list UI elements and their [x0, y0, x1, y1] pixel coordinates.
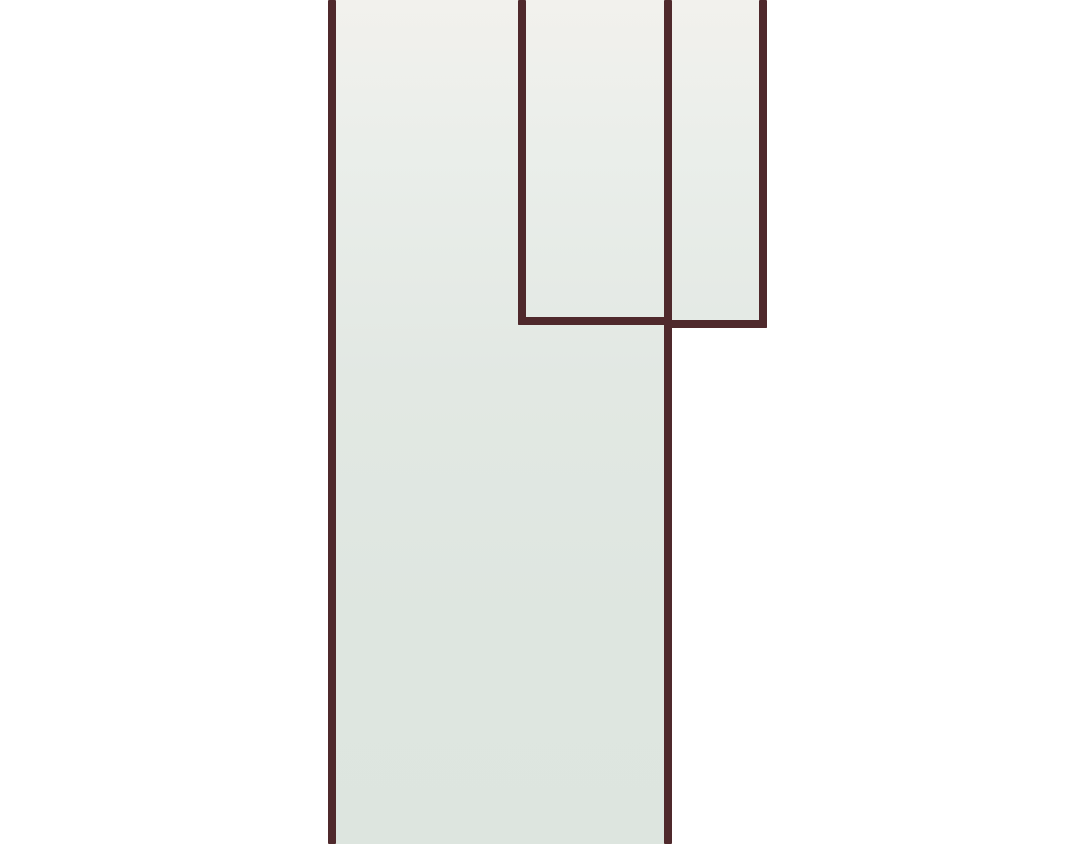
top-right-panel-fill: [668, 0, 763, 324]
panel-layer: [0, 0, 1080, 844]
inner-panel-left-border: [518, 0, 526, 325]
page-canvas: [0, 0, 1080, 844]
main-panel-right-border: [664, 0, 672, 844]
top-right-panel-right-border: [759, 0, 767, 328]
inner-panel-bottom-border: [518, 317, 672, 325]
main-panel-fill: [332, 0, 668, 844]
top-right-panel-bottom-border: [664, 320, 767, 328]
main-panel-left-border: [328, 0, 336, 844]
